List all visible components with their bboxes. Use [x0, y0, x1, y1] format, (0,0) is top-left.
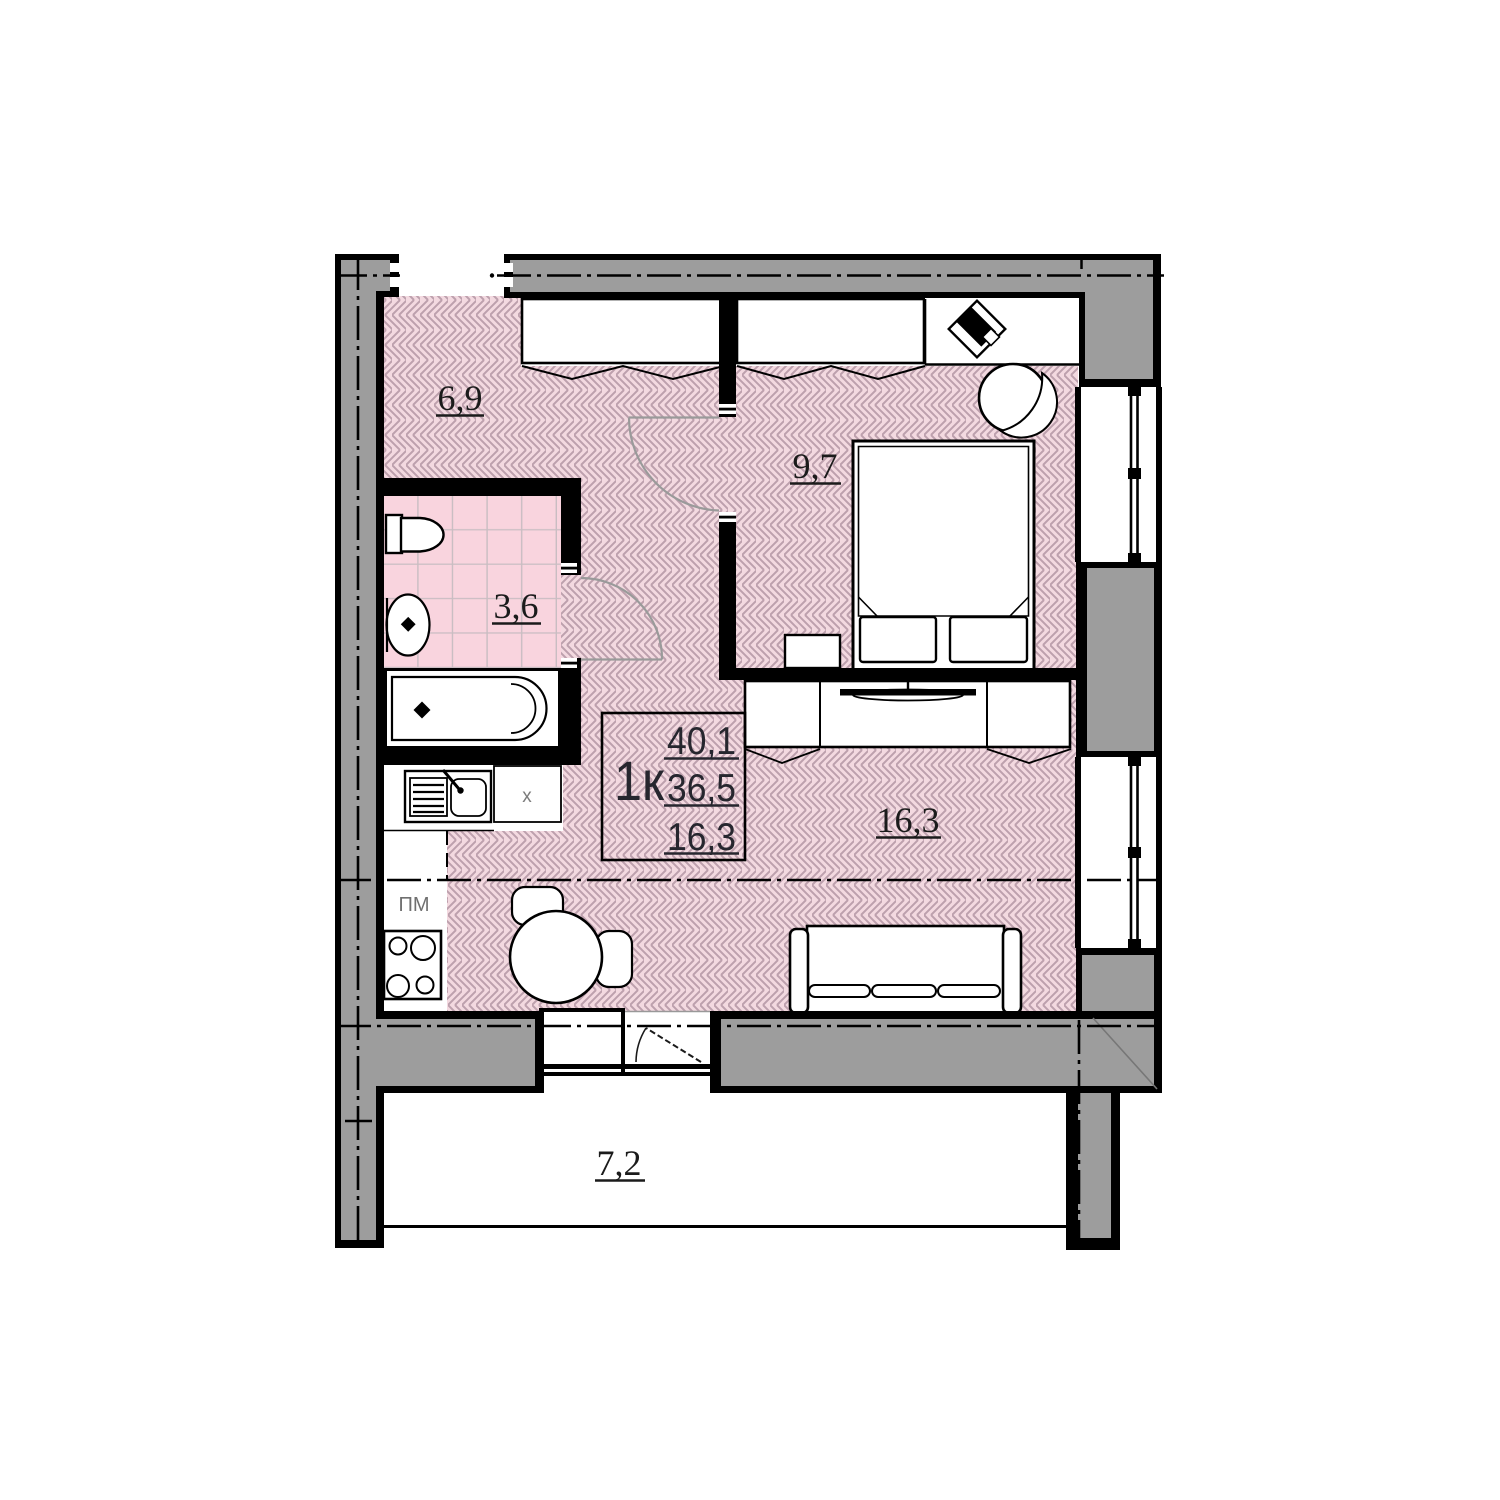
svg-text:40,1: 40,1 [667, 720, 736, 763]
svg-text:36,5: 36,5 [667, 767, 736, 810]
svg-text:16,3: 16,3 [877, 800, 940, 840]
svg-text:1к: 1к [614, 749, 664, 812]
svg-text:ПМ: ПМ [398, 894, 429, 916]
svg-text:7,2: 7,2 [597, 1143, 642, 1183]
svg-text:9,7: 9,7 [793, 446, 838, 486]
svg-text:3,6: 3,6 [494, 586, 539, 626]
svg-text:x: x [522, 786, 532, 807]
svg-text:6,9: 6,9 [438, 378, 483, 418]
